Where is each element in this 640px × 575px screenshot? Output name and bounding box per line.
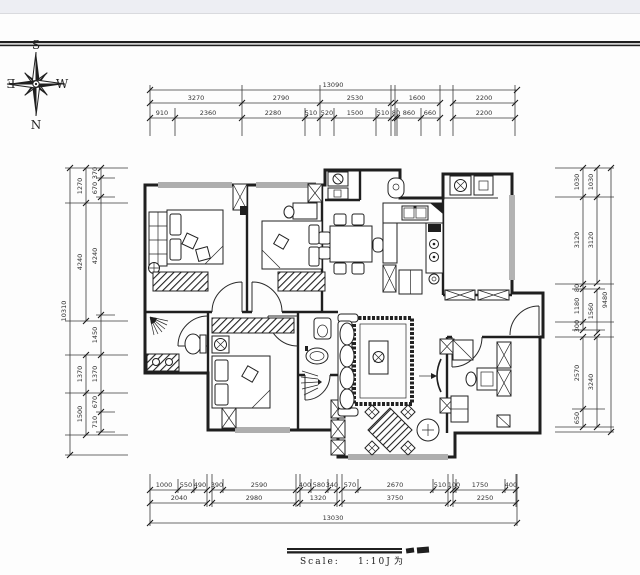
dim-label: 1450	[91, 327, 99, 344]
dim-label: 400	[505, 481, 517, 489]
compass-rose-icon: S N E W	[7, 38, 69, 132]
dim-label: 2200	[476, 109, 493, 117]
sheet-border-line	[0, 41, 640, 46]
dim-label: 3240	[587, 374, 595, 391]
dimension-chain-right: 1030 3120 80 1180 300 2570 650 1030 3120…	[555, 165, 614, 435]
dimension-chain-bottom: 1000 550 490 390 2590 400 580 340 570 26…	[147, 474, 520, 526]
scale-suffix: 为	[394, 555, 405, 567]
dim-label: 660	[424, 109, 436, 117]
dim-label: 390	[211, 481, 223, 489]
dim-label: 510	[377, 109, 389, 117]
dim-label: 1180	[573, 298, 581, 315]
dimension-chain-top: 13090 3270 2790 2530 1600 2200 910 2360 …	[147, 81, 520, 136]
dim-label: 1370	[76, 366, 84, 383]
utility-balcony	[328, 172, 493, 199]
dim-label: 1270	[76, 178, 84, 195]
master-bedroom-furniture	[149, 210, 224, 291]
dim-label: 520	[321, 109, 333, 117]
dim-label: 2360	[200, 109, 217, 117]
dim-label: 13090	[323, 81, 344, 89]
dim-label: 490	[194, 481, 206, 489]
compass-north-label: N	[31, 118, 42, 132]
bedroom2-furniture	[262, 203, 325, 291]
dim-label: 670	[91, 182, 99, 194]
dim-label: 710	[91, 416, 99, 428]
dim-label: 510	[434, 481, 446, 489]
dim-label: 340	[326, 481, 338, 489]
dim-label: 1500	[347, 109, 364, 117]
dim-label: 2530	[347, 94, 364, 102]
bathroom1-fixtures	[147, 317, 206, 371]
dim-label: 3120	[587, 232, 595, 249]
dim-label: 650	[573, 412, 581, 424]
dim-label: 2980	[246, 494, 263, 502]
dim-label: 80	[392, 109, 400, 117]
dim-label: 2570	[573, 365, 581, 382]
dim-label: 1030	[573, 174, 581, 191]
dim-label: 4240	[76, 254, 84, 271]
dim-label: 860	[403, 109, 415, 117]
dim-label: 510	[305, 109, 317, 117]
dim-label: 3270	[188, 94, 205, 102]
compass-east-label: E	[7, 77, 16, 91]
dim-label: 1750	[472, 481, 489, 489]
dining-furniture	[319, 214, 383, 274]
floor-plan-drawing: S N E W 13090 3270 2790 2530 1600 2200 9…	[0, 0, 640, 575]
dim-label: 1320	[310, 494, 327, 502]
dim-label: 2250	[477, 494, 494, 502]
dim-label: 3120	[573, 232, 581, 249]
dim-label: 2590	[251, 481, 268, 489]
dim-label: 2200	[476, 94, 493, 102]
dim-label: 2040	[171, 494, 188, 502]
dim-label: 400	[299, 481, 311, 489]
bathroom2-fixtures	[305, 318, 331, 364]
compass-west-label: W	[56, 77, 69, 91]
dim-label: 2790	[273, 94, 290, 102]
dim-label: 670	[91, 396, 99, 408]
dim-label: 80	[573, 284, 581, 292]
dim-label: 1560	[587, 303, 595, 320]
dim-label: 2280	[265, 109, 282, 117]
dim-label: 1370	[91, 366, 99, 383]
scale-value: 1:10Ј	[358, 557, 392, 567]
dim-label: 370	[91, 167, 99, 179]
scale-label: Scale:	[300, 557, 340, 567]
dim-label: 13030	[323, 514, 344, 522]
dim-label: 2670	[387, 481, 404, 489]
bedroom3-furniture	[212, 318, 294, 408]
dimension-chain-left: 10310 1270 4240 1370 1500 370 670 4240 1…	[60, 165, 128, 458]
dim-label: 100	[448, 481, 460, 489]
compass-south-label: S	[32, 38, 40, 52]
scale-bar: Scale: 1:10Ј 为	[287, 546, 429, 567]
dim-label: 1000	[156, 481, 173, 489]
dim-label: 580	[313, 481, 325, 489]
dim-label: 570	[344, 481, 356, 489]
dim-label: 10310	[60, 301, 68, 322]
dim-label: 4240	[91, 248, 99, 265]
dim-label: 1600	[409, 94, 426, 102]
dim-label: 3750	[387, 494, 404, 502]
floorplan-sheet: S N E W 13090 3270 2790 2530 1600 2200 9…	[0, 0, 640, 575]
dim-label: 1030	[587, 174, 595, 191]
dim-label: 1500	[76, 406, 84, 423]
dim-label: 910	[156, 109, 168, 117]
dim-label: 300	[573, 320, 581, 332]
kitchen-furniture	[383, 203, 443, 294]
dim-label: 9480	[601, 292, 609, 309]
dim-label: 550	[180, 481, 192, 489]
